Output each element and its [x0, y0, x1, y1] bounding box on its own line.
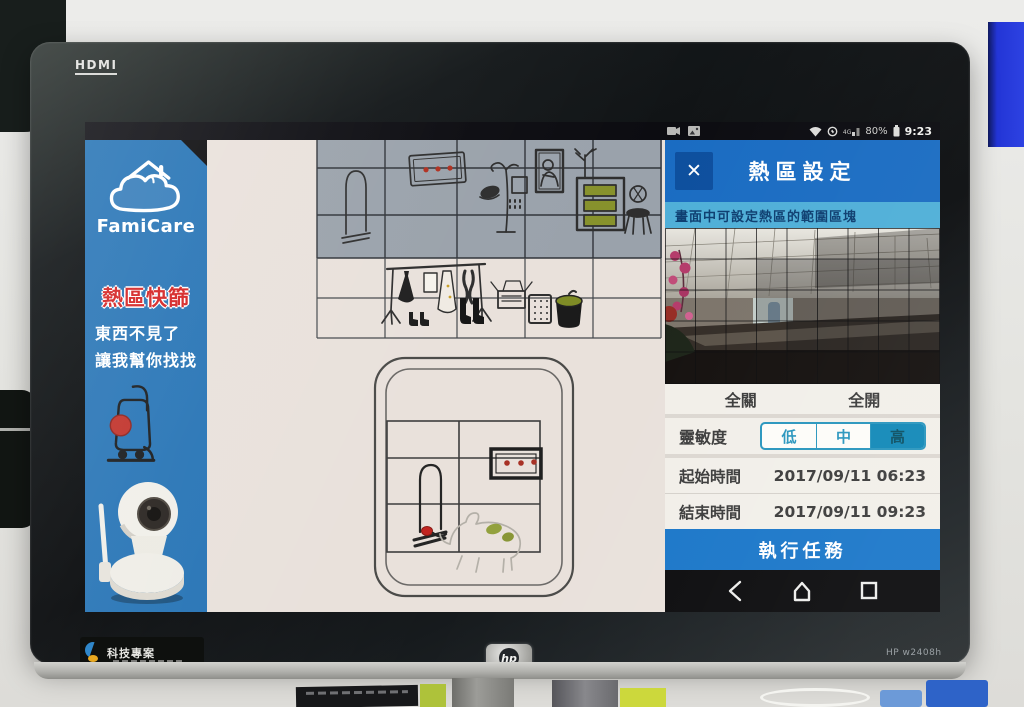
- room-canvas[interactable]: [207, 140, 665, 612]
- monitor-model-label: HP w2408h: [886, 648, 942, 658]
- camcorder-icon: [667, 126, 681, 136]
- recents-icon[interactable]: [857, 579, 881, 603]
- desk-item-blue-2: [880, 690, 922, 707]
- room-drawing[interactable]: [207, 140, 665, 612]
- cloud-house-icon: [94, 152, 198, 216]
- battery-icon: [893, 125, 900, 137]
- back-icon[interactable]: [724, 579, 748, 603]
- background-blue-screen: [988, 22, 1024, 147]
- desk-item-green-2: [620, 688, 666, 707]
- desk-cable: [760, 688, 870, 707]
- screenshot-icon: [688, 126, 700, 136]
- famicare-logo: FamiCare: [91, 152, 201, 237]
- sensitivity-low[interactable]: 低: [762, 424, 816, 448]
- clock: 9:23: [905, 125, 932, 138]
- selected-zone-shade: [757, 259, 941, 321]
- hdmi-logo: HDMI: [75, 58, 117, 75]
- sidebar-title: 熱區快篩: [85, 282, 207, 312]
- photo-of-monitor: HDMI 4G 80% 9:23: [0, 0, 1024, 707]
- camera-preview[interactable]: [665, 228, 940, 384]
- flower-frame-small-doodle: [491, 449, 541, 478]
- all-off-button[interactable]: 全關: [725, 387, 757, 411]
- start-time-label: 起始時間: [679, 465, 741, 487]
- sensitivity-high[interactable]: 高: [870, 424, 924, 448]
- mirror-small-doodle: [414, 465, 446, 546]
- rug-grid[interactable]: [387, 421, 540, 552]
- desk-item-blue: [926, 680, 988, 707]
- ip-camera-image: [89, 470, 201, 608]
- app-sidebar: FamiCare 熱區快篩 東西不見了 讓我幫你找找: [85, 140, 207, 612]
- signal-icon: 4G: [843, 126, 860, 136]
- end-time-row: 結束時間 2017/09/11 09:23: [665, 493, 940, 529]
- screen: 4G 80% 9:23 FamiCare: [85, 122, 940, 612]
- panel-header: ✕ 熱區設定: [665, 140, 940, 202]
- bulk-toggle-row: 全關 全開: [665, 384, 940, 414]
- sticker-logo-icon: [85, 642, 101, 664]
- panel-title: 熱區設定: [749, 156, 857, 186]
- sensitivity-segmented-control: 低 中 高: [760, 422, 926, 450]
- monitor-stand: [452, 678, 514, 707]
- dog-doodle: [440, 513, 520, 572]
- wifi-icon: [809, 126, 822, 137]
- panel-instruction: 畫面中可設定熱區的範圍區塊: [665, 202, 940, 228]
- sensitivity-label: 靈敏度: [679, 424, 727, 448]
- android-status-bar: 4G 80% 9:23: [85, 122, 940, 140]
- end-time-value[interactable]: 2017/09/11 09:23: [774, 503, 926, 521]
- execute-task-button[interactable]: 執行任務: [665, 529, 940, 570]
- start-time-row: 起始時間 2017/09/11 06:23: [665, 458, 940, 493]
- android-nav-bar: [665, 570, 940, 612]
- sync-icon: [827, 126, 838, 137]
- desk-card: [296, 685, 418, 707]
- sensitivity-mid[interactable]: 中: [816, 424, 870, 448]
- vacuum-doodle: [99, 378, 165, 470]
- sidebar-tagline-1: 東西不見了: [95, 320, 180, 344]
- sticker-title: 科技專案: [107, 645, 155, 661]
- desk-item-green: [420, 684, 446, 707]
- sidebar-tagline-2: 讓我幫你找找: [95, 347, 197, 371]
- start-time-value[interactable]: 2017/09/11 06:23: [774, 467, 926, 485]
- monitor-bottom-edge: [34, 662, 966, 679]
- logo-wordmark: FamiCare: [91, 216, 201, 237]
- all-on-button[interactable]: 全開: [848, 387, 880, 411]
- selected-zone-shade-2: [787, 321, 940, 352]
- home-icon[interactable]: [790, 579, 814, 603]
- end-time-label: 結束時間: [679, 501, 741, 523]
- close-button[interactable]: ✕: [675, 152, 713, 190]
- battery-percent: 80%: [865, 126, 887, 137]
- shelf-grid: [317, 258, 661, 338]
- monitor-stand-column: [552, 680, 618, 707]
- hotzone-settings-panel: ✕ 熱區設定 畫面中可設定熱區的範圍區塊: [665, 140, 940, 612]
- rug-doodle: [375, 358, 573, 596]
- sensitivity-row: 靈敏度 低 中 高: [665, 418, 940, 454]
